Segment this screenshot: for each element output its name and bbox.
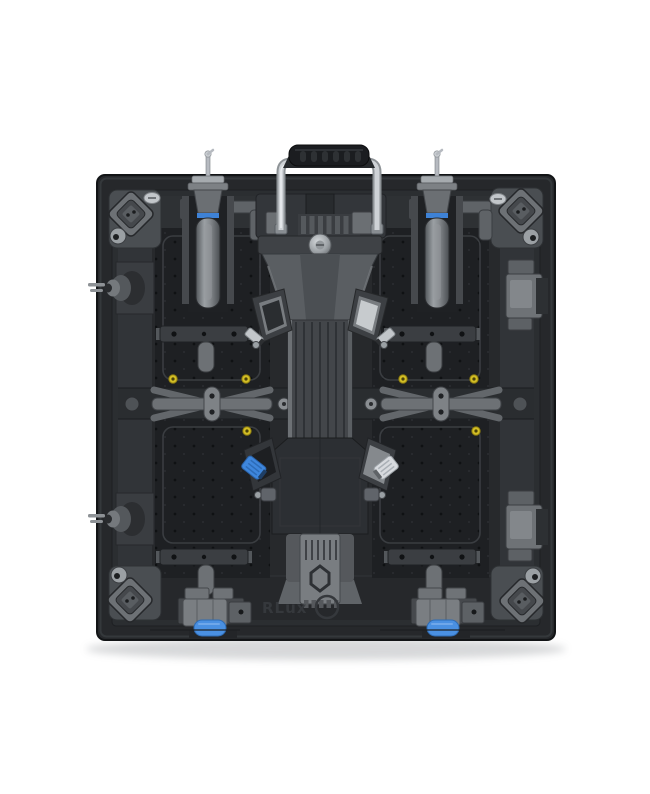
guide-tab [426, 342, 442, 372]
rail-end-cap [513, 397, 527, 411]
mounting-bar-top-left [156, 326, 252, 342]
drop-shadow [86, 638, 566, 660]
wedge-screw [253, 342, 260, 349]
led-panel-photo: RLux [0, 0, 650, 794]
corner-bracket-top-left [107, 190, 161, 248]
handle-mount-right [352, 212, 372, 234]
embossed-logo: RLux [262, 599, 307, 617]
mounting-bar-top-right [384, 326, 480, 342]
panel-rear-illustration: RLux [0, 0, 650, 794]
corner-bracket-bottom-left [106, 566, 161, 624]
mounting-bar-bottom-left [156, 549, 252, 565]
mounting-bar-bottom-right [384, 549, 480, 565]
cross-brace-left [152, 387, 272, 421]
guide-tab [198, 342, 214, 372]
corner-bracket-bottom-right [491, 566, 546, 625]
corner-bracket-top-right [490, 187, 545, 248]
rail-end-cap [125, 397, 139, 411]
brace-boss-screw [282, 402, 286, 406]
brace-boss-screw [369, 402, 373, 406]
cross-brace-right [381, 387, 501, 421]
